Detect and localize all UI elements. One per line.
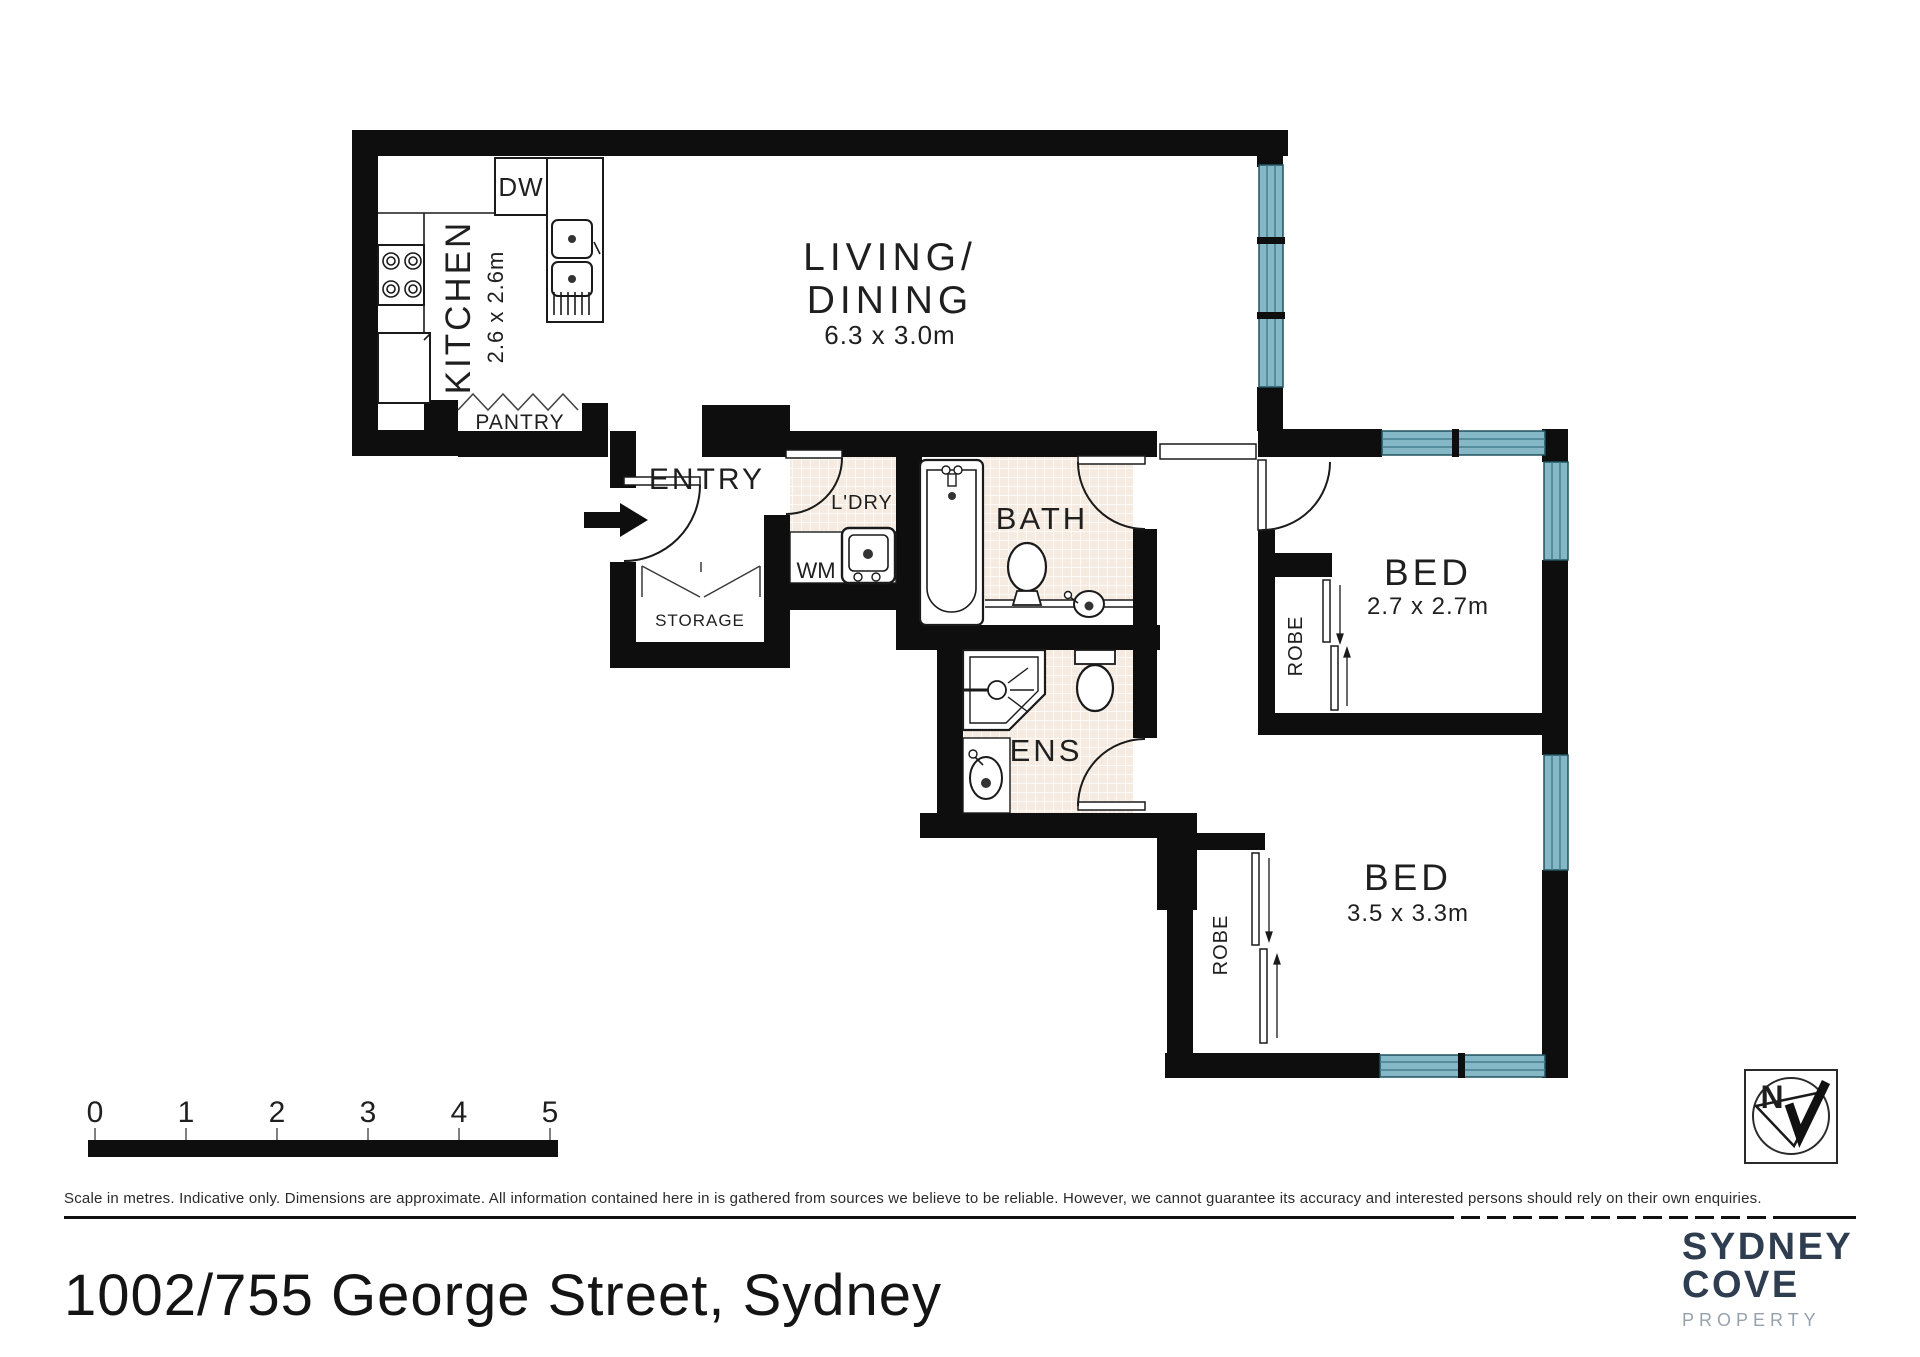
living-window <box>1257 165 1285 387</box>
compass-n-label: N <box>1760 1079 1783 1115</box>
floorplan-page: DW PANTRY KITCHEN 2.6 x 2.6m LIVING/ DIN… <box>0 0 1920 1357</box>
room-living-dining: LIVING/ DINING 6.3 x 3.0m <box>803 236 977 350</box>
scale-bar-rule <box>88 1140 558 1157</box>
scale-tick-5: 5 <box>542 1096 559 1129</box>
entry-label: ENTRY <box>649 463 765 496</box>
bed1-dims: 2.7 x 2.7m <box>1367 593 1489 620</box>
vanity-bench <box>985 600 1133 607</box>
scale-tick-1: 1 <box>178 1096 195 1129</box>
agency-tagline: PROPERTY <box>1682 1311 1853 1329</box>
storage-fold-marks <box>642 562 760 597</box>
scale-tick-0: 0 <box>87 1096 104 1129</box>
agency-logo: SYDNEY COVE PROPERTY <box>1682 1228 1853 1329</box>
bed2-east-window <box>1544 755 1568 870</box>
kitchen-dims: 2.6 x 2.6m <box>483 251 508 364</box>
living-label-line1: LIVING/ <box>803 236 977 279</box>
robe2: ROBE <box>1210 853 1280 1043</box>
robe1-label: ROBE <box>1285 616 1307 677</box>
north-compass-icon: N <box>1745 1070 1837 1163</box>
property-address: 1002/755 George Street, Sydney <box>64 1262 942 1329</box>
bed1-north-window <box>1382 429 1545 457</box>
pantry-label: PANTRY <box>475 411 564 434</box>
scale-bar: 0 1 2 3 4 5 <box>87 1096 559 1157</box>
laundry-label: L'DRY <box>831 492 893 514</box>
divider-line <box>64 1216 1856 1219</box>
oven <box>378 333 430 403</box>
scale-tick-2: 2 <box>269 1096 286 1129</box>
room-entry: ENTRY STORAGE <box>642 463 765 630</box>
agency-name-line1: SYDNEY <box>1682 1228 1853 1266</box>
basin <box>1065 591 1105 617</box>
floor-plan-canvas: DW PANTRY KITCHEN 2.6 x 2.6m LIVING/ DIN… <box>0 0 1920 1357</box>
toilet <box>1075 650 1115 711</box>
living-dims: 6.3 x 3.0m <box>824 320 955 350</box>
room-bed2: BED 3.5 x 3.3m ROBE <box>1210 853 1469 1043</box>
pantry-shelf-zigzag <box>458 394 578 410</box>
robe1: ROBE <box>1285 580 1350 710</box>
agency-name-line2: COVE <box>1682 1266 1853 1304</box>
entry-arrow-icon <box>584 503 648 537</box>
kitchen-label: KITCHEN <box>439 220 478 395</box>
scale-tick-4: 4 <box>451 1096 468 1129</box>
robe2-label: ROBE <box>1210 915 1232 976</box>
bed1-door <box>1258 460 1330 530</box>
disclaimer-text: Scale in metres. Indicative only. Dimens… <box>64 1190 1864 1207</box>
ensuite-label: ENS <box>1010 733 1083 768</box>
storage-label: STORAGE <box>655 611 745 630</box>
wm-label: WM <box>796 558 835 583</box>
bed2-south-window <box>1380 1053 1545 1078</box>
bed1-east-window <box>1544 462 1568 560</box>
hall-opening <box>1160 444 1256 459</box>
bath-label: BATH <box>996 501 1088 536</box>
room-kitchen: DW PANTRY KITCHEN 2.6 x 2.6m <box>378 158 603 434</box>
scale-tick-3: 3 <box>360 1096 377 1129</box>
bed1-label: BED <box>1384 552 1472 593</box>
living-label-line2: DINING <box>807 279 974 322</box>
dw-label: DW <box>498 172 543 202</box>
bed2-label: BED <box>1364 857 1452 898</box>
bathtub <box>920 460 983 625</box>
bed2-dims: 3.5 x 3.3m <box>1347 900 1469 927</box>
